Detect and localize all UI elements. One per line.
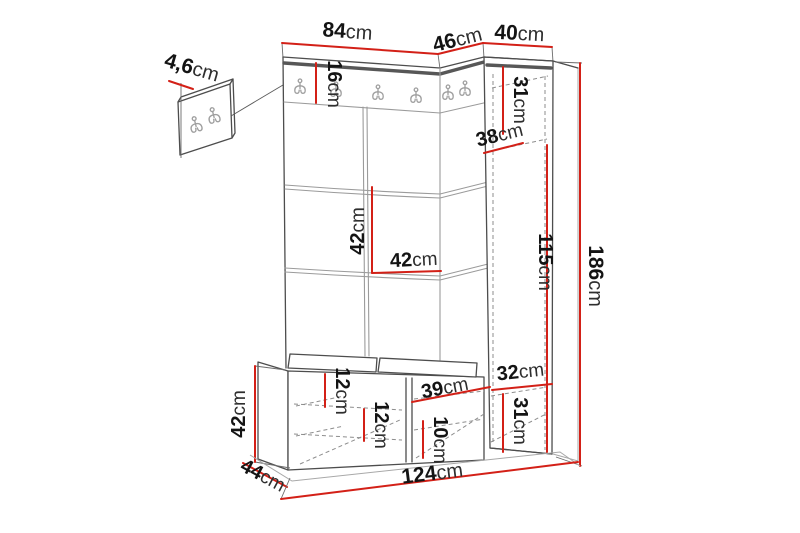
coat-hook-icon — [373, 85, 383, 99]
tall-cabinet: 31cm 38cm 115cm 32cm 31cm 186cm — [474, 57, 607, 466]
label-total-height: 186cm — [584, 245, 607, 307]
label-tile-height: 42cm — [347, 207, 369, 255]
dimension-diagram-page: 4,6cm 84cm 46cm 40cm — [0, 0, 800, 533]
label-tile-width: 42cm — [389, 248, 438, 272]
detail-leader-line — [231, 85, 283, 116]
label-cabinet-top-section: 31cm — [509, 76, 531, 124]
wall-panel: 16cm 42cm 42cm — [283, 57, 488, 368]
dim-line-panel-width — [282, 43, 438, 54]
label-shelf-spacing-right: 10cm — [429, 416, 451, 464]
furniture-dimension-diagram: 4,6cm 84cm 46cm 40cm — [0, 0, 800, 533]
hook-rail — [295, 79, 470, 102]
coat-hook-icon — [460, 81, 470, 95]
label-hook-rail-height: 16cm — [323, 60, 345, 108]
coat-hook-icon — [411, 88, 421, 102]
label-bench-height: 42cm — [228, 390, 250, 438]
label-panel-width: 84cm — [322, 18, 373, 44]
detail-hook-panel: 4,6cm — [162, 49, 283, 158]
bench-left-side — [258, 362, 288, 470]
label-cabinet-bottom-section: 31cm — [509, 397, 531, 445]
label-shelf-spacing-lower: 12cm — [370, 401, 392, 449]
detail-panel-side-edge — [232, 79, 235, 138]
label-cabinet-inner-height: 115cm — [534, 233, 556, 291]
panel-left-edge — [283, 57, 286, 368]
hook-rail-bottom-edge — [284, 102, 488, 113]
label-cabinet-side-depth: 46cm — [430, 22, 484, 56]
label-cabinet-width: 40cm — [494, 21, 545, 47]
coat-hook-icon — [443, 85, 453, 99]
coat-hook-icon — [295, 79, 305, 93]
label-shelf-spacing-upper: 12cm — [331, 367, 353, 415]
panel-tile-seams — [285, 107, 488, 356]
